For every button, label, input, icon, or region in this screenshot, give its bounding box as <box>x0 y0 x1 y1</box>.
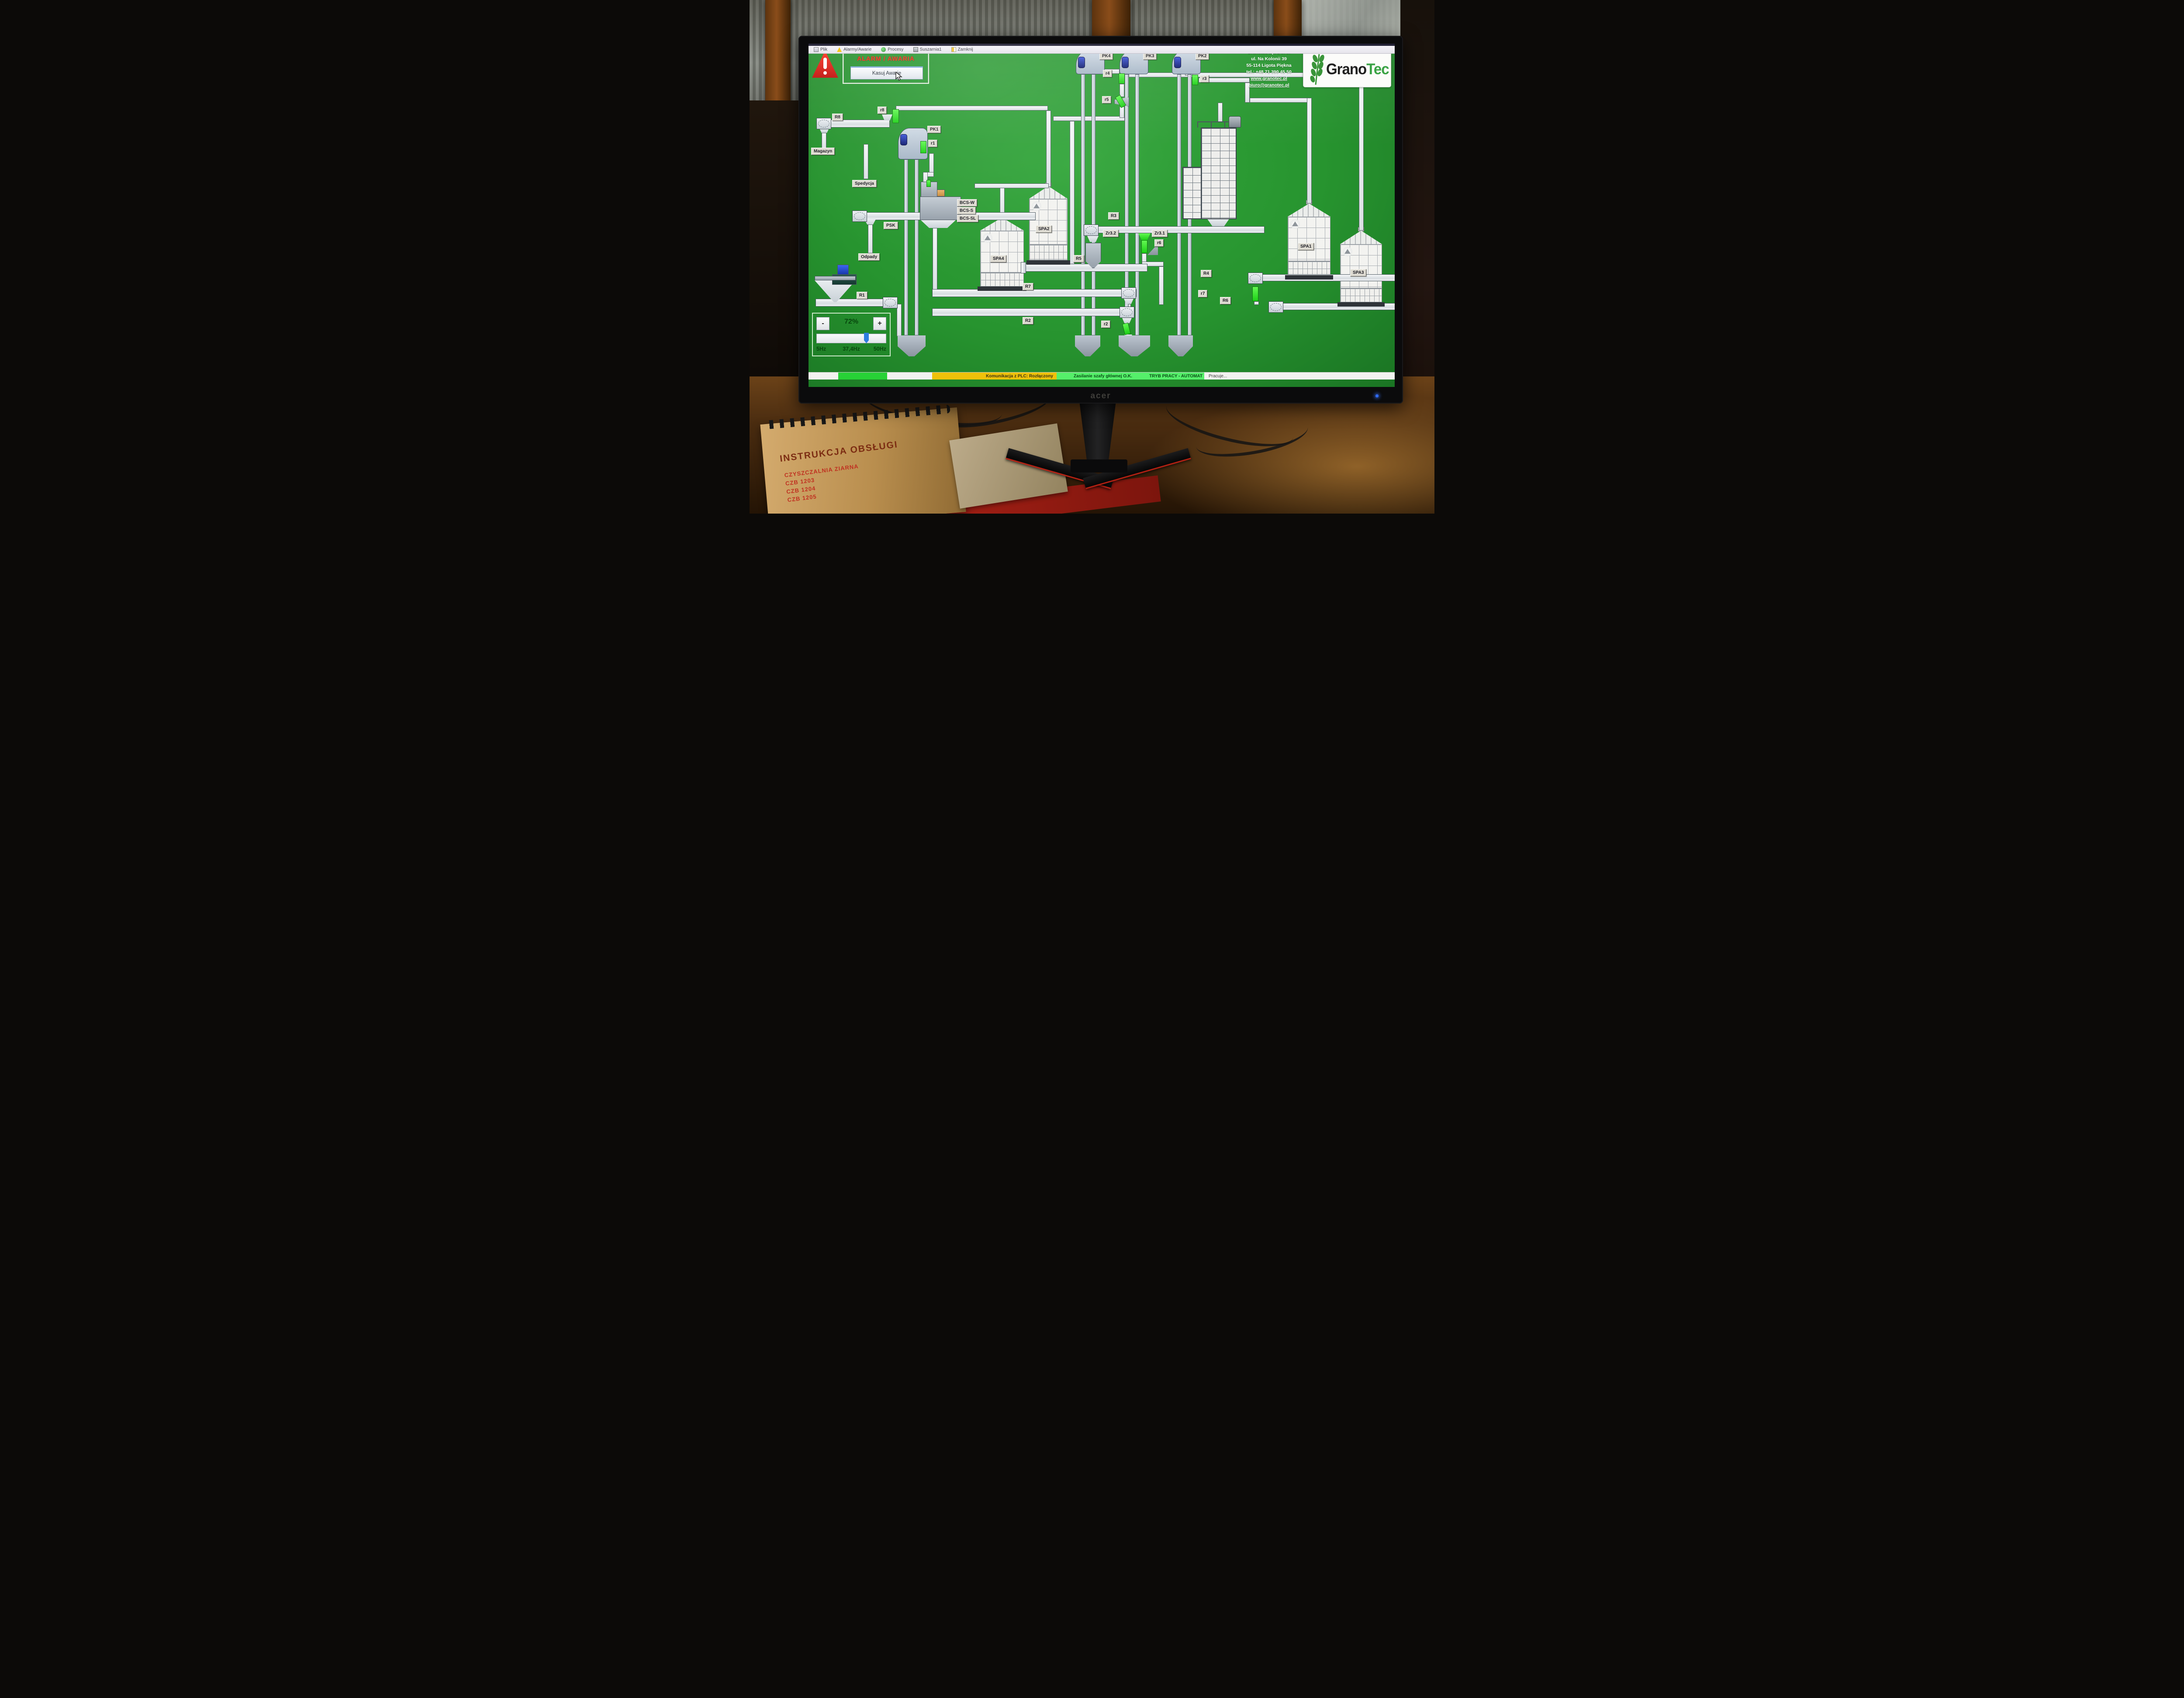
status-power: Zasilanie szafy głównej O.K. TRYB PRACY … <box>1057 373 1204 380</box>
menu-item-suszarnia1[interactable]: Suszarnia1 <box>913 47 942 52</box>
silo-skirt-SPA2 <box>1029 245 1068 260</box>
freq-plus-button[interactable]: + <box>873 317 886 330</box>
equipment-label-spa2: SPA2 <box>1036 225 1052 233</box>
conveyor-motor-PSK <box>852 211 867 222</box>
elevator-leg-PK1 <box>915 159 919 335</box>
silo-base-SPA2 <box>1026 260 1070 265</box>
conveyor-motor-R1 <box>883 297 898 308</box>
company-info: Granotec Sp. z o. o.ul. Na Kolonii 3955-… <box>1237 49 1301 89</box>
silo-level-indicator-SPA2 <box>1032 201 1041 211</box>
alarm-title: ALARM / AWARIA <box>843 55 928 62</box>
menu-item-label: Plik <box>820 47 827 52</box>
elevator-leg-PK1 <box>904 159 908 335</box>
company-link[interactable]: biuro@granotec.pl <box>1237 82 1301 89</box>
menu-item-label: Suszarnia1 <box>920 47 942 52</box>
valve-r4 <box>1119 73 1125 84</box>
pipe <box>1254 301 1259 305</box>
pipe <box>864 144 868 179</box>
booklet-title: INSTRUKCJA OBSŁUGI <box>779 439 898 464</box>
conveyor-R2 <box>932 308 1135 316</box>
conveyor-endcap-R5 <box>1021 262 1026 273</box>
status-mode-text: TRYB PRACY - AUTOMAT <box>1149 374 1204 379</box>
close-icon <box>951 47 956 52</box>
equipment-label-pk1: PK1 <box>927 126 941 133</box>
photo-scene: INSTRUKCJA OBSŁUGI CZYSZCZALNIA ZIARNA C… <box>750 0 1434 514</box>
zr32-funnel <box>1087 236 1099 242</box>
conveyor-R7 <box>932 289 1137 297</box>
instruction-booklet: INSTRUKCJA OBSŁUGI CZYSZCZALNIA ZIARNA C… <box>760 407 966 514</box>
equipment-label-v-r8: r8 <box>878 107 887 114</box>
monitor: PlikAlarmy/AwarieProcesySuszarnia1Zamkni… <box>798 36 1403 404</box>
conveyor-motor-R6 <box>1268 301 1283 313</box>
equipment-label-v-r3: r3 <box>1200 75 1209 83</box>
equipment-label-v-r7: r7 <box>1198 290 1207 297</box>
monitor-brand: acer <box>798 391 1403 401</box>
menu-item-procesy[interactable]: Procesy <box>881 47 903 52</box>
booklet-subtitle: CZYSZCZALNIA ZIARNA CZB 1203CZB 1204CZB … <box>784 462 862 504</box>
equipment-label-c-R3: R3 <box>1108 212 1119 220</box>
company-line: tel.: +48 71 390 45 50 <box>1237 69 1301 76</box>
wheat-icon <box>1306 52 1326 86</box>
equipment-label-c-R5: R5 <box>1073 255 1084 262</box>
elevator-leg-PK2 <box>1177 74 1181 335</box>
equipment-label-zr31: Zr3.1 <box>1152 230 1168 237</box>
kasuj-awarie-button[interactable]: Kasuj Awarie <box>850 66 923 79</box>
pipe <box>1053 116 1125 121</box>
status-indicator-green <box>838 373 887 380</box>
conveyor-motor-R7 <box>1121 287 1136 299</box>
elevator-motor-PK4 <box>1078 57 1085 68</box>
equipment-label-bcs-w: BCS-W <box>957 199 977 207</box>
pipe <box>975 183 1049 188</box>
menu-item-label: Alarmy/Awarie <box>843 47 871 52</box>
dryer-discharge <box>1207 218 1230 226</box>
frequency-panel: - 72% + 5Hz 37,4Hz 50Hz <box>812 313 891 356</box>
window-frame-beam <box>1274 0 1302 40</box>
silo-level-indicator-SPA3 <box>1343 247 1352 256</box>
conveyor-motor-R4 <box>1248 273 1263 284</box>
menu-item-label: Procesy <box>888 47 903 52</box>
equipment-label-v-r5: r5 <box>1102 96 1111 104</box>
pipe <box>1120 107 1124 118</box>
elevator-motor-PK1 <box>900 134 907 145</box>
status-power-text: Zasilanie szafy głównej O.K. <box>1057 374 1149 379</box>
process-icon <box>881 47 886 52</box>
scada-screen: PlikAlarmy/AwarieProcesySuszarnia1Zamkni… <box>809 44 1395 387</box>
equipment-label-bcs-s: BCS-S <box>957 207 976 214</box>
zr31-green-funnel <box>1138 233 1151 240</box>
equipment-label-c-R8: R8 <box>832 114 843 121</box>
elevator-motor-PK3 <box>1122 57 1129 68</box>
equipment-label-c-R4: R4 <box>1201 270 1212 277</box>
freq-slider[interactable] <box>816 334 886 343</box>
window-glass <box>1301 0 1401 39</box>
elevator-boot-PK4 <box>1075 335 1100 356</box>
equipment-label-v-r4: r4 <box>1103 70 1112 77</box>
pipe <box>897 304 902 336</box>
equipment-label-odpady: Odpady <box>858 253 880 261</box>
elevator-boot-PK1 <box>898 335 926 356</box>
equipment-label-zr32: Zr3.2 <box>1103 230 1119 237</box>
equipment-label-bcs-sl: BCS-SL <box>957 215 978 222</box>
conveyor-R5 <box>1023 264 1147 272</box>
valve-zr31 <box>1141 240 1147 253</box>
company-line: ul. Na Kolonii 39 <box>1237 56 1301 62</box>
pipe <box>933 228 937 290</box>
pipe <box>1070 121 1075 265</box>
freq-max: 50Hz <box>874 346 886 352</box>
exclamation-dot <box>823 71 827 75</box>
menu-item-plik[interactable]: Plik <box>814 47 827 52</box>
dryer-tower <box>1201 128 1237 219</box>
silo-skirt-SPA4 <box>980 273 1024 286</box>
equipment-label-c-R2: R2 <box>1023 317 1033 324</box>
equipment-label-psk: PSK <box>884 222 898 229</box>
conveyor-motor-R8 <box>816 118 831 129</box>
silo-skirt-SPA1 <box>1288 261 1330 275</box>
conveyor-motor-R3 <box>1084 224 1099 236</box>
freq-slider-thumb[interactable] <box>864 333 869 343</box>
equipment-label-c-R6: R6 <box>1220 297 1231 304</box>
alarm-warning-icon <box>812 51 838 78</box>
file-icon <box>814 47 819 52</box>
pipe <box>868 224 873 253</box>
status-state: Pracuje... <box>1207 373 1227 380</box>
silo-skirt-SPA3 <box>1340 288 1382 302</box>
truck-icon <box>837 265 849 275</box>
elevator-boot-PK2 <box>1168 335 1193 356</box>
equipment-label-v-r1: r1 <box>928 140 937 147</box>
dryer-icon <box>913 47 918 52</box>
menu-item-zamknij[interactable]: Zamknij <box>951 47 973 52</box>
monitor-stand-foot <box>1071 459 1127 473</box>
bcs-orange-part <box>937 190 945 197</box>
mouse-cursor-icon <box>895 72 902 81</box>
company-link[interactable]: www.granotec.pl <box>1237 76 1301 82</box>
equipment-label-v-r2: r2 <box>1101 321 1110 328</box>
dryer-annex <box>1182 167 1202 219</box>
dryer-fan <box>1229 116 1241 128</box>
warning-icon <box>837 47 842 52</box>
pipe <box>1250 98 1312 103</box>
equipment-label-c-R7: R7 <box>1023 283 1033 290</box>
equipment-label-spa4: SPA4 <box>990 255 1006 262</box>
bcs-discharge-funnel <box>921 220 956 228</box>
conveyor-motor-R2 <box>1120 307 1134 318</box>
silo-base-SPA3 <box>1337 302 1385 307</box>
equipment-label-spa3: SPA3 <box>1350 269 1366 276</box>
hopper-rim <box>815 276 856 280</box>
window-frame-beam <box>765 0 791 110</box>
menu-item-label: Zamknij <box>958 47 973 52</box>
pipe <box>1218 103 1223 122</box>
alarm-panel: ALARM / AWARIA Kasuj Awarie <box>843 52 929 84</box>
equipment-label-c-R1: R1 <box>857 292 867 299</box>
pipe <box>1159 266 1164 305</box>
valve-r3 <box>1192 75 1198 85</box>
bcs-cleaner-body <box>920 197 961 220</box>
pipe <box>1359 77 1364 231</box>
logo-text: GranoTec <box>1326 60 1389 78</box>
company-line: 55-114 Ligota Piękna <box>1237 62 1301 69</box>
equipment-label-spedycja: Spedycja <box>852 180 877 187</box>
exclamation-bar <box>823 58 827 69</box>
silo-level-indicator-SPA1 <box>1290 219 1300 229</box>
status-bar: Komunikacja z PLC: Rozłączony Zasilanie … <box>809 372 1395 380</box>
silo-level-indicator-SPA4 <box>983 233 992 243</box>
menu-item-alarmy-awarie[interactable]: Alarmy/Awarie <box>837 47 871 52</box>
elevator-boot-PK3 <box>1119 335 1150 356</box>
valve-r2 <box>1122 323 1131 335</box>
valve-bcs <box>926 180 931 187</box>
menu-bar: PlikAlarmy/AwarieProcesySuszarnia1Zamkni… <box>809 46 1395 54</box>
silo-roof-SPA3 <box>1340 231 1382 244</box>
equipment-label-magazyn: Magazyn <box>811 148 835 155</box>
power-led <box>1375 394 1379 397</box>
valve-r8 <box>892 109 899 123</box>
dark-corner <box>750 100 801 406</box>
pipe <box>822 133 826 148</box>
status-plc: Komunikacja z PLC: Rozłączony <box>932 373 1057 380</box>
equipment-label-spa1: SPA1 <box>1298 243 1314 250</box>
equipment-label-v-r6: r6 <box>1154 239 1164 247</box>
silo-roof-SPA1 <box>1288 204 1330 217</box>
pipe <box>896 106 1048 110</box>
silo-base-SPA4 <box>978 286 1026 291</box>
elevator-motor-PK2 <box>1174 57 1181 68</box>
pipe <box>1307 98 1312 204</box>
granotec-logo: GranoTec <box>1303 51 1391 87</box>
valve-r7 <box>1252 286 1258 301</box>
silo-base-SPA1 <box>1285 275 1333 280</box>
pipe <box>1046 110 1051 187</box>
valve-r1 <box>920 141 926 153</box>
